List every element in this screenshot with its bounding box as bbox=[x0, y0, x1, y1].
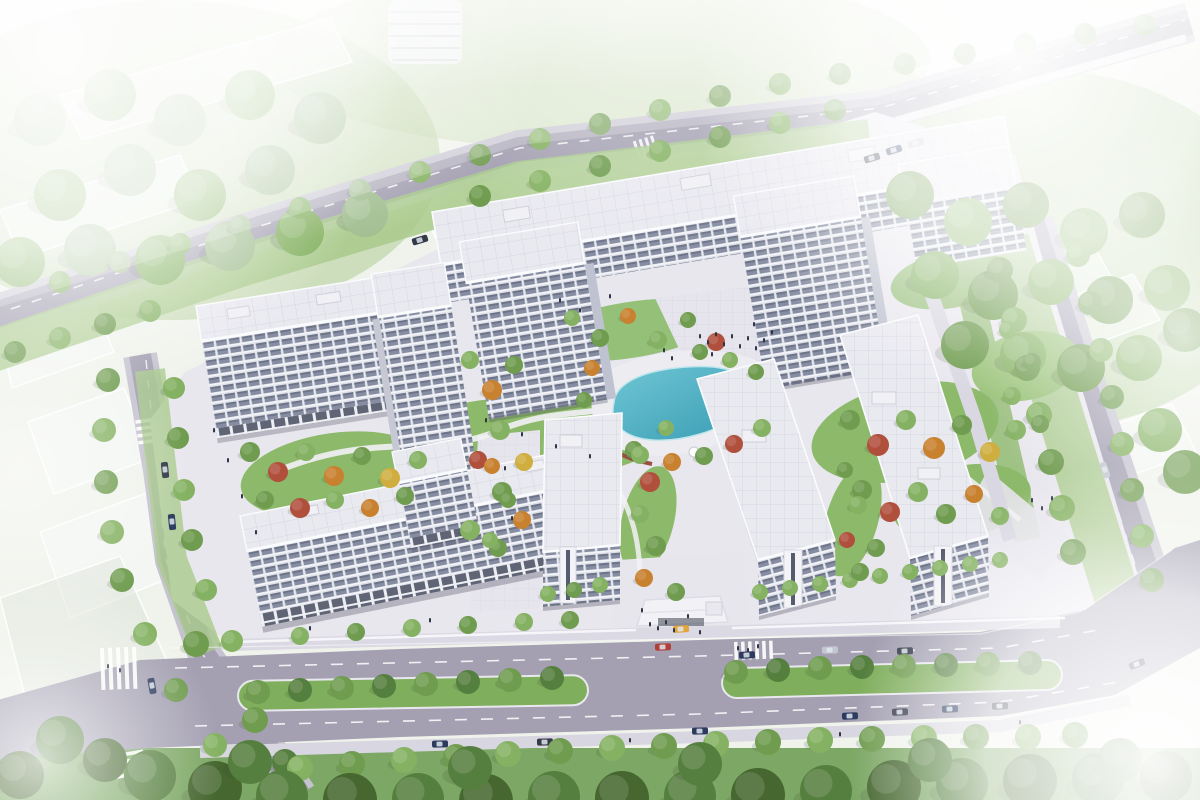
tree-highlight bbox=[298, 444, 308, 454]
tree-highlight bbox=[565, 311, 574, 320]
person bbox=[429, 618, 431, 623]
tree-highlight bbox=[842, 412, 853, 423]
vehicle-glass bbox=[659, 645, 665, 650]
tree-highlight bbox=[813, 577, 822, 586]
tree-highlight bbox=[838, 463, 847, 472]
vehicle-glass bbox=[743, 653, 749, 658]
roof-bulkhead bbox=[560, 435, 582, 447]
person bbox=[555, 444, 557, 449]
person bbox=[589, 454, 591, 459]
person bbox=[504, 466, 506, 471]
person bbox=[757, 644, 759, 649]
person bbox=[579, 308, 581, 313]
tree-highlight bbox=[500, 670, 513, 683]
vehicle bbox=[655, 643, 671, 651]
tree-highlight bbox=[954, 417, 965, 428]
tree-highlight bbox=[292, 628, 302, 638]
tree-highlight bbox=[497, 743, 511, 757]
tree-highlight bbox=[485, 459, 494, 468]
person bbox=[609, 294, 611, 299]
tree-highlight bbox=[348, 624, 358, 634]
tree-highlight bbox=[326, 468, 337, 479]
tree-highlight bbox=[451, 749, 475, 773]
tree-highlight bbox=[668, 584, 678, 594]
roof-bulkhead bbox=[918, 468, 940, 479]
vehicle-glass bbox=[436, 742, 442, 747]
tree-highlight bbox=[549, 740, 563, 754]
tree-highlight bbox=[664, 454, 674, 464]
person bbox=[707, 340, 709, 345]
tree-highlight bbox=[632, 506, 642, 516]
tree-highlight bbox=[562, 612, 572, 622]
person bbox=[665, 620, 667, 625]
tree-highlight bbox=[341, 753, 355, 767]
vehicle-glass bbox=[846, 714, 852, 719]
tree-highlight bbox=[648, 538, 659, 549]
person bbox=[657, 626, 659, 631]
tree-highlight bbox=[404, 620, 414, 630]
tree-highlight bbox=[768, 660, 781, 673]
vehicle bbox=[673, 625, 689, 633]
person bbox=[687, 614, 689, 619]
tree-highlight bbox=[270, 464, 281, 475]
person bbox=[663, 348, 665, 353]
person bbox=[213, 428, 215, 433]
tree-highlight bbox=[483, 533, 492, 542]
tree-highlight bbox=[650, 332, 660, 342]
tree-highlight bbox=[593, 578, 602, 587]
tree-highlight bbox=[292, 500, 303, 511]
person bbox=[723, 342, 725, 347]
person bbox=[771, 330, 773, 335]
tree-highlight bbox=[290, 680, 303, 693]
person bbox=[715, 332, 717, 337]
person bbox=[559, 298, 561, 303]
person bbox=[753, 322, 755, 327]
tree-highlight bbox=[541, 587, 550, 596]
tree-highlight bbox=[494, 484, 505, 495]
tree-highlight bbox=[693, 345, 702, 354]
tree-highlight bbox=[501, 493, 510, 502]
person bbox=[649, 622, 651, 627]
tree-highlight bbox=[810, 658, 823, 671]
tree-highlight bbox=[621, 309, 630, 318]
tree-highlight bbox=[850, 497, 860, 507]
tree-highlight bbox=[332, 678, 345, 691]
tree-highlight bbox=[242, 444, 253, 455]
tree-highlight bbox=[460, 617, 470, 627]
tree-highlight bbox=[840, 533, 849, 542]
tree-highlight bbox=[868, 540, 878, 550]
tree-highlight bbox=[462, 352, 472, 362]
tree-highlight bbox=[723, 353, 732, 362]
person bbox=[255, 530, 257, 535]
tree-highlight bbox=[393, 749, 407, 763]
person bbox=[309, 626, 311, 631]
person bbox=[485, 418, 487, 423]
tree-highlight bbox=[382, 470, 393, 481]
gate-opening bbox=[658, 618, 704, 626]
tree-highlight bbox=[852, 657, 865, 670]
tree-highlight bbox=[183, 531, 195, 543]
tree-highlight bbox=[681, 745, 705, 769]
tree-highlight bbox=[223, 632, 235, 644]
stair-slit bbox=[791, 553, 795, 605]
tree-highlight bbox=[248, 682, 261, 695]
tree-highlight bbox=[757, 731, 771, 745]
person bbox=[731, 334, 733, 339]
person bbox=[699, 334, 701, 339]
tree-highlight bbox=[696, 448, 706, 458]
tree-highlight bbox=[632, 447, 642, 457]
tree-highlight bbox=[274, 751, 288, 765]
tree-highlight bbox=[601, 737, 615, 751]
vehicle bbox=[822, 646, 838, 654]
tree-highlight bbox=[462, 522, 473, 533]
scene-svg bbox=[0, 0, 1200, 800]
tree-highlight bbox=[542, 668, 555, 681]
tree-highlight bbox=[783, 581, 792, 590]
person bbox=[227, 458, 229, 463]
person bbox=[763, 338, 765, 343]
guard-booth bbox=[706, 602, 722, 615]
tree-highlight bbox=[869, 436, 881, 448]
aerial-render bbox=[0, 0, 1200, 800]
tree-highlight bbox=[327, 492, 337, 502]
tree-highlight bbox=[185, 633, 199, 647]
tree-highlight bbox=[753, 585, 762, 594]
tree-highlight bbox=[516, 614, 526, 624]
tree-highlight bbox=[873, 569, 882, 578]
person bbox=[241, 494, 243, 499]
person bbox=[755, 346, 757, 351]
tree-highlight bbox=[681, 313, 690, 322]
tree-highlight bbox=[197, 581, 209, 593]
tree-highlight bbox=[726, 436, 736, 446]
tree-highlight bbox=[754, 420, 764, 430]
tree-highlight bbox=[416, 674, 429, 687]
tree-highlight bbox=[903, 565, 912, 574]
person bbox=[673, 628, 675, 633]
tree-highlight bbox=[966, 486, 976, 496]
tree-highlight bbox=[910, 484, 921, 495]
tree-highlight bbox=[636, 570, 646, 580]
tree-highlight bbox=[506, 357, 516, 367]
vehicle-glass bbox=[696, 729, 702, 734]
person bbox=[641, 608, 643, 613]
vehicle bbox=[739, 651, 755, 659]
tree-highlight bbox=[982, 444, 993, 455]
tree-highlight bbox=[397, 488, 407, 498]
vehicle-glass bbox=[677, 626, 683, 631]
tree-highlight bbox=[726, 662, 739, 675]
tree-highlight bbox=[882, 504, 893, 515]
person bbox=[737, 646, 739, 651]
tree-highlight bbox=[410, 452, 420, 462]
tree-highlight bbox=[516, 454, 526, 464]
tree-highlight bbox=[854, 482, 865, 493]
tree-highlight bbox=[577, 393, 586, 402]
tree-highlight bbox=[653, 735, 667, 749]
tree-highlight bbox=[257, 492, 267, 502]
entrance-gate bbox=[637, 596, 728, 626]
person bbox=[671, 356, 673, 361]
tree-highlight bbox=[809, 729, 823, 743]
person bbox=[699, 630, 701, 635]
tree-highlight bbox=[244, 709, 258, 723]
person bbox=[629, 738, 631, 743]
tree-highlight bbox=[458, 672, 471, 685]
tree-highlight bbox=[484, 382, 495, 393]
vehicle-glass bbox=[826, 648, 832, 653]
vehicle bbox=[692, 727, 708, 734]
person bbox=[521, 432, 523, 437]
tree-highlight bbox=[659, 421, 668, 430]
tree-highlight bbox=[231, 743, 255, 767]
tree-highlight bbox=[804, 769, 833, 798]
vehicle-glass bbox=[541, 740, 547, 745]
tree-highlight bbox=[592, 330, 602, 340]
building-center-south-slab bbox=[543, 413, 622, 611]
tree-highlight bbox=[374, 676, 387, 689]
tree-highlight bbox=[642, 474, 653, 485]
person bbox=[739, 344, 741, 349]
roof-bulkhead bbox=[872, 392, 896, 404]
tree-highlight bbox=[925, 439, 937, 451]
tree-highlight bbox=[354, 448, 364, 458]
tree-highlight bbox=[749, 365, 758, 374]
person bbox=[511, 516, 513, 521]
person bbox=[747, 336, 749, 341]
tree-highlight bbox=[514, 512, 524, 522]
person bbox=[711, 352, 713, 357]
person bbox=[747, 648, 749, 653]
person bbox=[839, 732, 841, 737]
tree-highlight bbox=[898, 412, 909, 423]
tree-highlight bbox=[852, 564, 862, 574]
tree-highlight bbox=[470, 452, 480, 462]
tree-highlight bbox=[585, 361, 594, 370]
tree-highlight bbox=[567, 583, 576, 592]
tree-highlight bbox=[492, 422, 503, 433]
roof bbox=[543, 413, 622, 552]
tree-highlight bbox=[938, 506, 949, 517]
tree-highlight bbox=[362, 500, 372, 510]
vehicle bbox=[432, 740, 448, 747]
tree-highlight bbox=[289, 757, 303, 771]
